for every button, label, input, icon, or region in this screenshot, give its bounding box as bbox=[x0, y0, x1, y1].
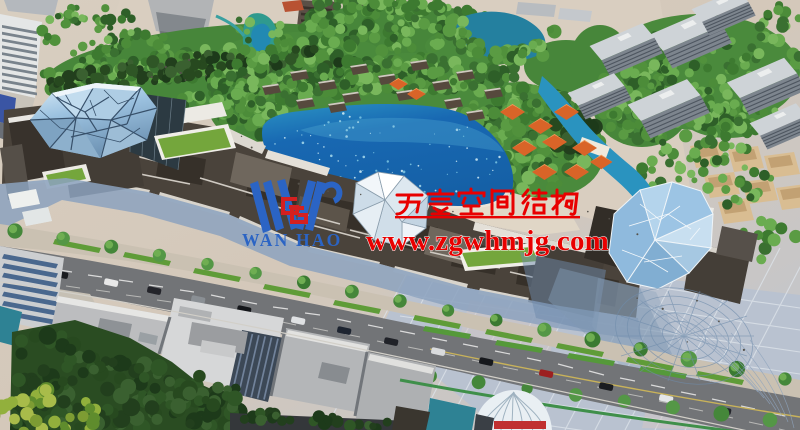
svg-text:WAN HAO: WAN HAO bbox=[242, 230, 342, 250]
svg-text:www.zgwhmjg.com: www.zgwhmjg.com bbox=[366, 225, 609, 257]
